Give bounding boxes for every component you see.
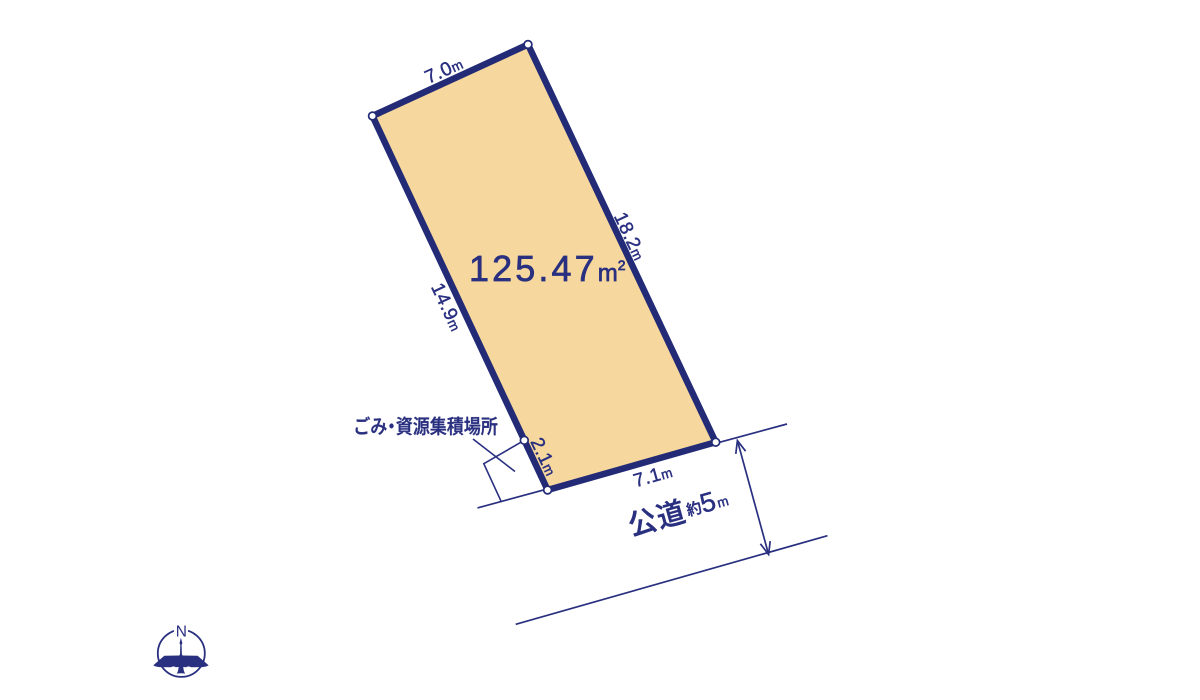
svg-text:N: N bbox=[176, 624, 187, 641]
